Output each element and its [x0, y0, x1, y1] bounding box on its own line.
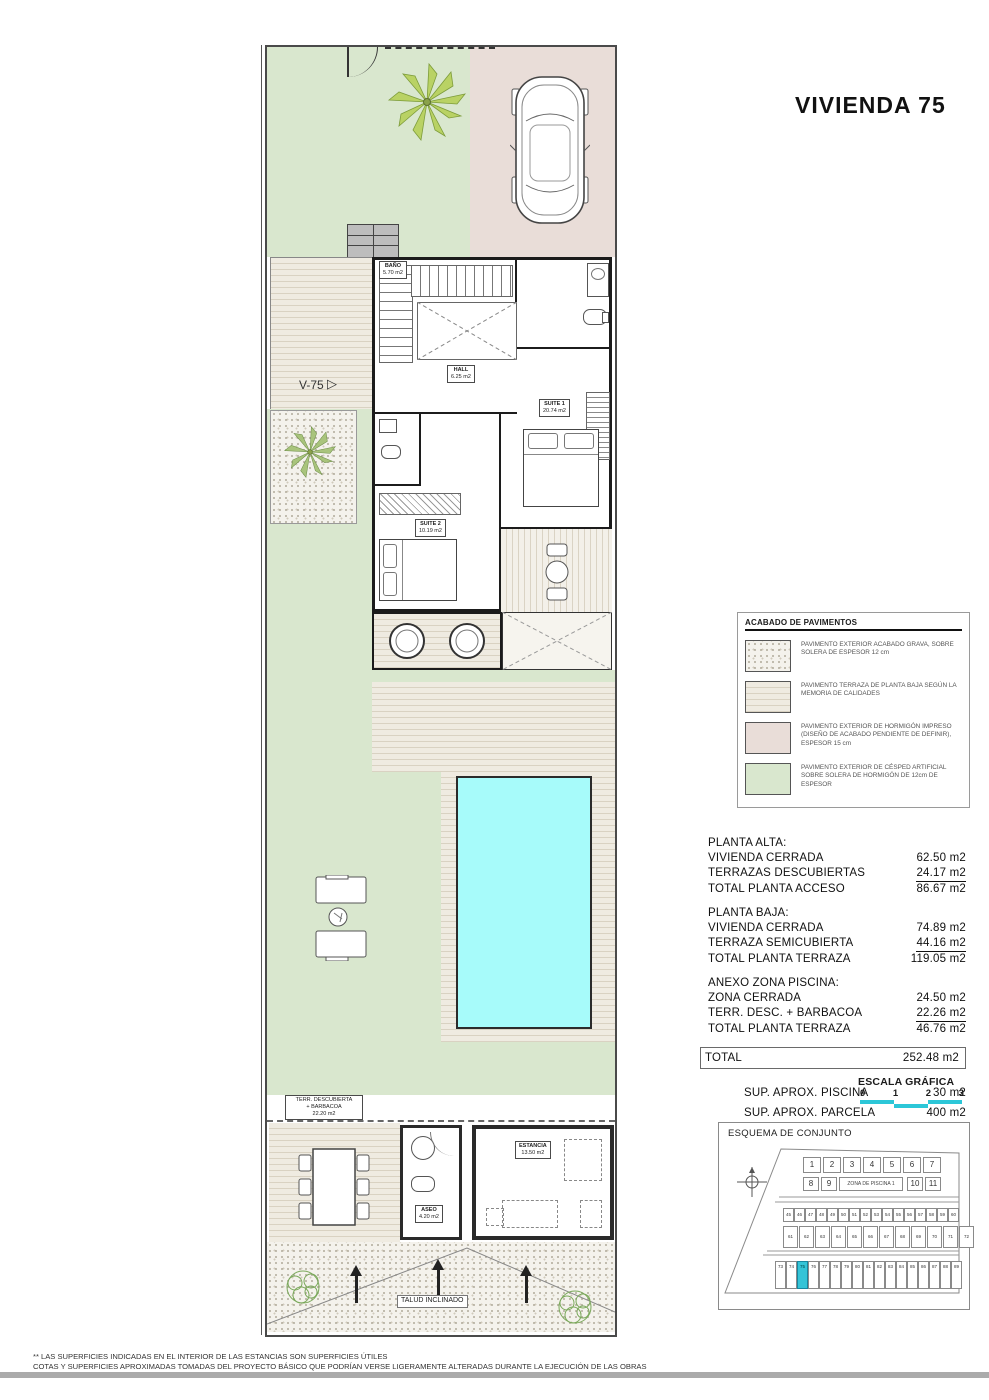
unit-number: 52	[860, 1208, 871, 1222]
unit-number: 57	[915, 1208, 926, 1222]
unit-number: 67	[879, 1226, 894, 1248]
exterior-stairs	[347, 224, 399, 259]
footer-line-2: COTAS Y SUPERFICIES APROXIMADAS TOMADAS …	[33, 1362, 647, 1372]
zona-piscina-label: ZONA DE PISCINA 1	[839, 1177, 903, 1191]
unit-number: 86	[918, 1261, 929, 1289]
talud-label: TALUD INCLINADO	[397, 1295, 468, 1308]
unit-number: 46	[794, 1208, 805, 1222]
unit-number: 78	[830, 1261, 841, 1289]
unit-number: 82	[874, 1261, 885, 1289]
unit-number: 79	[841, 1261, 852, 1289]
unit-number: 80	[852, 1261, 863, 1289]
legend-item-grava: PAVIMENTO EXTERIOR ACABADO GRAVA, SOBRE …	[745, 640, 962, 672]
footer-bar	[0, 1372, 989, 1378]
room-label-suite1: SUITE 120.74 m2	[539, 399, 570, 417]
palm-tree-icon	[379, 54, 475, 150]
terrace-table-chairs	[529, 542, 585, 602]
unit-row-73-89: 7374757677787980818283848586878889	[775, 1261, 962, 1289]
swimming-pool	[456, 776, 592, 1029]
unit-number: 49	[827, 1208, 838, 1222]
section-header: PLANTA ALTA:	[708, 836, 966, 851]
footer-notes: ** LAS SUPERFICIES INDICADAS EN EL INTER…	[33, 1352, 647, 1372]
scale-ticks: 01 23	[858, 1088, 966, 1100]
legend-title: ACABADO DE PAVIMENTOS	[745, 618, 962, 631]
car-icon	[510, 73, 590, 227]
scale-title: ESCALA GRÁFICA	[858, 1076, 966, 1088]
unit-number: 64	[831, 1226, 846, 1248]
unit-number: 61	[783, 1226, 798, 1248]
unit-number: 55	[893, 1208, 904, 1222]
legend-item-hormigon: PAVIMENTO EXTERIOR DE HORMIGÓN IMPRESO (…	[745, 722, 962, 754]
table-row: TERR. DESC. + BARBACOA22.26 m2	[708, 1006, 966, 1022]
unit-number: 70	[927, 1226, 942, 1248]
legend-acabado-pavimentos: ACABADO DE PAVIMENTOS PAVIMENTO EXTERIOR…	[737, 612, 970, 808]
plot-number: 10	[907, 1177, 923, 1191]
table-row: TERRAZAS DESCUBIERTAS24.17 m2	[708, 866, 966, 882]
unit-number: 51	[849, 1208, 860, 1222]
scale-bar	[858, 1100, 966, 1110]
table-row: TOTAL PLANTA TERRAZA46.76 m2	[708, 1022, 966, 1037]
unit-number: 69	[911, 1226, 926, 1248]
unit-number: 72	[959, 1226, 974, 1248]
drawing-sheet: V-75 ▷	[0, 0, 989, 1400]
table-row: TERRAZA SEMICUBIERTA44.16 m2	[708, 936, 966, 952]
v75-arrow-icon: ▷	[327, 376, 337, 392]
legend-item-cesped: PAVIMENTO EXTERIOR DE CÉSPED ARTIFICIAL …	[745, 763, 962, 795]
unit-number: 87	[929, 1261, 940, 1289]
bed-suite1	[523, 429, 599, 507]
unit-number: 68	[895, 1226, 910, 1248]
bush-icon-right	[553, 1285, 597, 1329]
plot-number: 9	[821, 1177, 837, 1191]
stairs-run-horizontal	[411, 265, 513, 297]
unit-number: 88	[940, 1261, 951, 1289]
palm-tree-small-icon	[278, 420, 342, 484]
swatch-gravel	[745, 640, 791, 672]
table-row: TOTAL PLANTA TERRAZA119.05 m2	[708, 952, 966, 967]
unit-number: 74	[786, 1261, 797, 1289]
plot-number: 4	[863, 1157, 881, 1173]
unit-number: 76	[808, 1261, 819, 1289]
section-header: ANEXO ZONA PISCINA:	[708, 976, 966, 991]
plot-number: 8	[803, 1177, 819, 1191]
label-terr-barbacoa: TERR. DESCUBIERTA + BARBACOA 22.20 m2	[285, 1095, 363, 1120]
parcel-outer-line	[261, 45, 262, 1335]
slope-arrow-1	[355, 1269, 358, 1303]
footer-line-1: ** LAS SUPERFICIES INDICADAS EN EL INTER…	[33, 1352, 647, 1362]
unit-number: 83	[885, 1261, 896, 1289]
aseo-room	[400, 1125, 462, 1240]
pergola-cross	[502, 612, 612, 670]
unit-number: 73	[775, 1261, 786, 1289]
unit-row-45-60: 45464748495051525354555657585960	[783, 1208, 959, 1222]
unit-number: 45	[783, 1208, 794, 1222]
wall-wc-bottom	[372, 484, 421, 486]
unit-number: 58	[926, 1208, 937, 1222]
wall-hall-bottom	[372, 412, 517, 414]
plot-number: 7	[923, 1157, 941, 1173]
slope-arrow-3	[525, 1269, 528, 1303]
pool-deck-upper	[372, 682, 615, 772]
bush-icon-left	[281, 1265, 325, 1309]
unit-number: 62	[799, 1226, 814, 1248]
total-row: TOTAL252.48 m2	[700, 1047, 966, 1069]
stair-void-cross	[417, 302, 517, 360]
unit-number: 81	[863, 1261, 874, 1289]
terrace-v75-label: V-75 ▷	[299, 377, 337, 393]
table-row: VIVIENDA CERRADA74.89 m2	[708, 921, 966, 936]
table-row: ZONA CERRADA24.50 m2	[708, 991, 966, 1006]
section-header: PLANTA BAJA:	[708, 906, 966, 921]
unit-number: 75	[797, 1261, 808, 1289]
site-scheme: ESQUEMA DE CONJUNTO 1234567 89 ZONA DE P…	[718, 1122, 970, 1310]
unit-number: 89	[951, 1261, 962, 1289]
unit-number: 65	[847, 1226, 862, 1248]
room-label-suite2: SUITE 210.19 m2	[415, 519, 446, 537]
unit-number: 60	[948, 1208, 959, 1222]
wall-bath-bottom	[515, 347, 612, 349]
entrance-door-leaf	[347, 47, 349, 77]
plot-number: 2	[823, 1157, 841, 1173]
plot-row-1: 1234567	[803, 1157, 941, 1173]
page-title: VIVIENDA 75	[795, 92, 946, 119]
plot-row-2a: 89	[803, 1177, 837, 1191]
plot-number: 6	[903, 1157, 921, 1173]
plot-number: 3	[843, 1157, 861, 1173]
unit-number: 66	[863, 1226, 878, 1248]
unit-number: 71	[943, 1226, 958, 1248]
unit-number: 84	[896, 1261, 907, 1289]
plot-row-2b: 1011	[907, 1177, 941, 1191]
unit-number: 50	[838, 1208, 849, 1222]
bath-counter	[587, 263, 609, 297]
unit-number: 56	[904, 1208, 915, 1222]
legend-item-terraza: PAVIMENTO TERRAZA DE PLANTA BAJA SEGÚN L…	[745, 681, 962, 713]
annex-dashed-line	[267, 1120, 615, 1122]
unit-number: 54	[882, 1208, 893, 1222]
wc-sink	[379, 419, 397, 433]
plot-dashed-boundary	[385, 47, 495, 49]
wall-wc	[419, 412, 421, 484]
swatch-concrete	[745, 722, 791, 754]
stairs-run-vertical	[379, 265, 413, 363]
unit-number: 47	[805, 1208, 816, 1222]
table-row: TOTAL PLANTA ACCESO86.67 m2	[708, 882, 966, 897]
unit-number: 77	[819, 1261, 830, 1289]
toilet-icon	[583, 309, 607, 325]
table-row: VIVIENDA CERRADA62.50 m2	[708, 851, 966, 866]
unit-number: 48	[816, 1208, 827, 1222]
wc-toilet	[381, 445, 401, 459]
bed-suite2	[379, 539, 457, 601]
unit-row-61-72: 616263646566676869707172	[783, 1226, 974, 1248]
plot-number: 1	[803, 1157, 821, 1173]
room-label-estancia: ESTANCIA13.50 m2	[515, 1141, 551, 1159]
swatch-grass	[745, 763, 791, 795]
sun-loungers	[312, 875, 374, 961]
room-label-hall: HALL6.25 m2	[447, 365, 475, 383]
dining-table-chairs	[289, 1137, 379, 1237]
wardrobe-suite2	[379, 493, 461, 515]
unit-number: 85	[907, 1261, 918, 1289]
room-label-aseo: ASEO4.20 m2	[415, 1205, 443, 1223]
floor-plan-parcel: V-75 ▷	[265, 45, 617, 1337]
plot-number: 11	[925, 1177, 941, 1191]
room-label-bano: BAÑO5.70 m2	[379, 261, 407, 279]
balcony-planters	[379, 617, 497, 665]
swatch-deck	[745, 681, 791, 713]
graphic-scale: ESCALA GRÁFICA 01 23	[858, 1076, 966, 1110]
unit-number: 59	[937, 1208, 948, 1222]
unit-number: 53	[871, 1208, 882, 1222]
plot-number: 5	[883, 1157, 901, 1173]
unit-number: 63	[815, 1226, 830, 1248]
